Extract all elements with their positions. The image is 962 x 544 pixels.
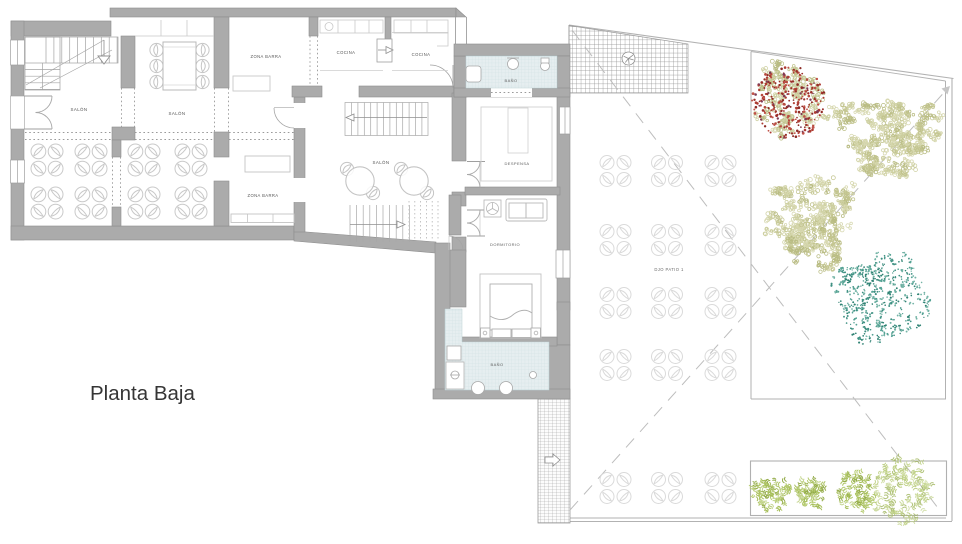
svg-text:COCINA: COCINA: [412, 52, 431, 57]
svg-text:BAÑO: BAÑO: [505, 78, 518, 83]
svg-text:DESPENSA: DESPENSA: [505, 161, 530, 166]
svg-text:COCINA: COCINA: [337, 50, 356, 55]
svg-text:BAÑO: BAÑO: [491, 362, 504, 367]
svg-text:SALÓN: SALÓN: [373, 160, 390, 165]
svg-text:DJO PATIO 1: DJO PATIO 1: [654, 267, 684, 272]
svg-text:ZONA BARRA: ZONA BARRA: [248, 193, 279, 198]
svg-text:SALÓN: SALÓN: [71, 107, 88, 112]
svg-text:ZONA BARRA: ZONA BARRA: [251, 54, 282, 59]
svg-text:Planta Baja: Planta Baja: [90, 382, 195, 405]
svg-text:SALÓN: SALÓN: [169, 111, 186, 116]
svg-text:DORMITORIO: DORMITORIO: [490, 242, 520, 247]
